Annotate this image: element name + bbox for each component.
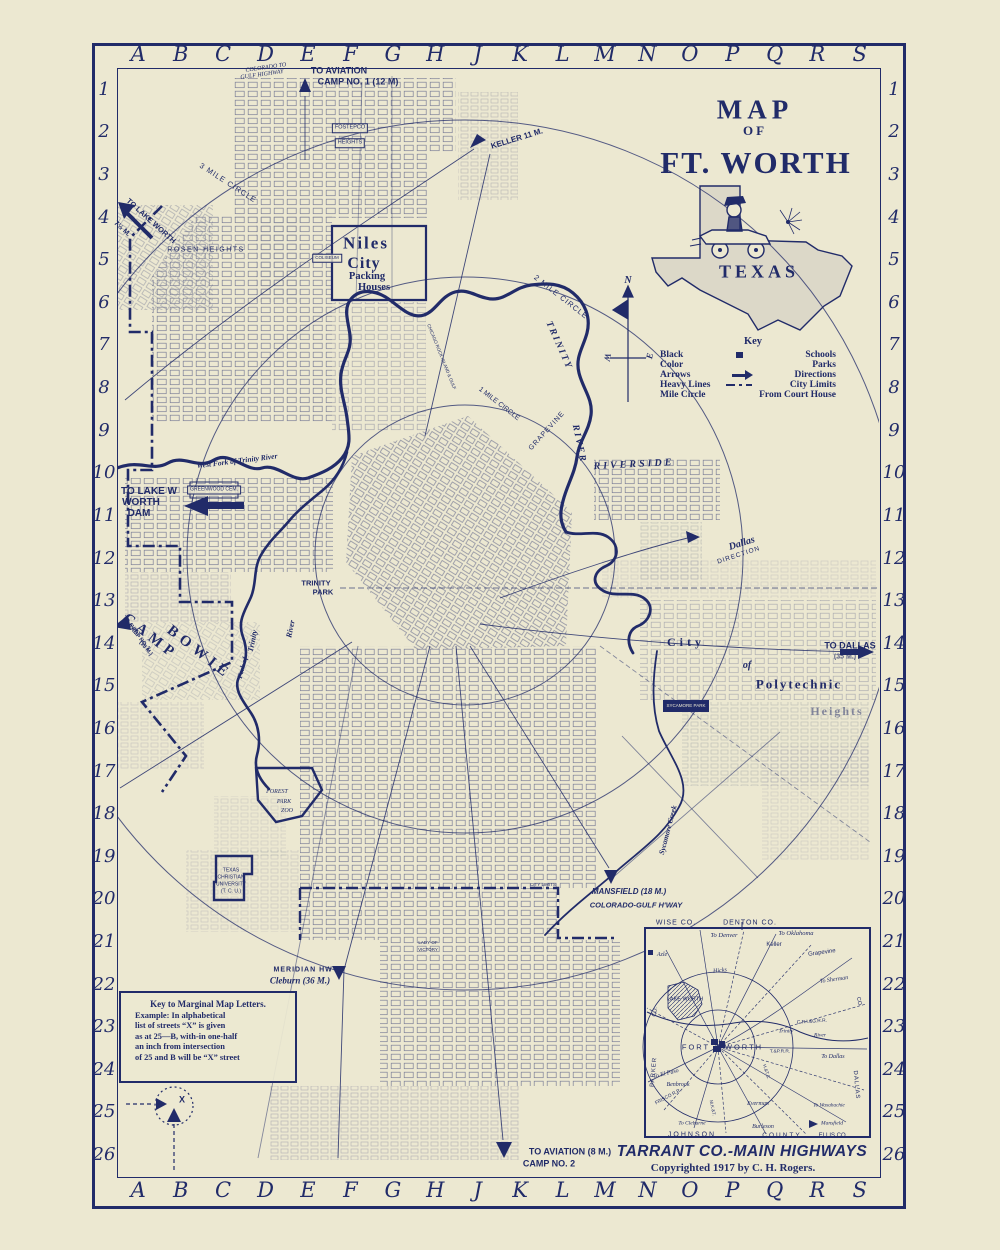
margin-number: 5 [92,238,116,281]
margin-letter: J [457,1178,499,1203]
margin-number: 12 [882,537,906,580]
margin-number: 3 [882,153,906,196]
margin-letter: C [202,42,244,67]
margin-number: 5 [882,238,906,281]
legend-label: Mile Circle [660,390,718,400]
title-line-of: OF [743,123,767,139]
margin-letter: Q [754,42,796,67]
margin-letter: S [838,42,880,67]
margin-letter: K [499,42,541,67]
margin-letter: K [499,1178,541,1203]
margin-number: 24 [92,1048,116,1091]
margin-number: 1 [882,68,906,111]
margin-number: 24 [882,1048,906,1091]
margin-letter: D [244,42,286,67]
school-square-symbol [736,352,743,358]
margin-number: 7 [92,324,116,367]
margin-letter: F [329,1178,371,1203]
marginal-key-lines: Example: In alphabeticallist of streets … [121,1011,295,1062]
margin-number: 13 [882,579,906,622]
margin-number: 11 [882,494,906,537]
margin-number: 15 [92,665,116,708]
margin-letter: H [414,42,456,67]
marginal-key-line: of 25 and B will be “X” street [135,1053,295,1062]
title-line-map: MAP [717,95,793,126]
margin-number: 3 [92,153,116,196]
margin-numbers-right: 1234567891011121314151617181920212223242… [882,68,906,1176]
margin-number: 11 [92,494,116,537]
margin-number: 26 [92,1133,116,1176]
margin-number: 26 [882,1133,906,1176]
title-line-city: FT. WORTH [660,145,851,181]
margin-letter: N [626,42,668,67]
margin-number: 23 [882,1005,906,1048]
legend-label: Color [660,360,718,370]
legend-label: Arrows [660,370,718,380]
margin-letter: R [796,1178,838,1203]
margin-number: 18 [882,792,906,835]
margin-number: 7 [882,324,906,367]
margin-letter: N [626,1178,668,1203]
margin-letter: O [669,1178,711,1203]
margin-number: 9 [92,409,116,452]
margin-letter: B [159,1178,201,1203]
margin-number: 25 [92,1091,116,1134]
margin-number: 18 [92,792,116,835]
marginal-key-line: list of streets “X” is given [135,1021,295,1030]
legend-label: Heavy Lines [660,380,718,390]
margin-letter: F [329,42,371,67]
margin-number: 2 [882,111,906,154]
margin-number: 21 [882,920,906,963]
direction-arrow-symbol [732,374,746,377]
margin-letter: O [669,42,711,67]
margin-letter: G [372,1178,414,1203]
margin-number: 17 [92,750,116,793]
legend-row-parks: Color Parks [660,360,836,370]
margin-number: 1 [92,68,116,111]
margin-letter: H [414,1178,456,1203]
legend-key-heading: Key [670,336,836,347]
margin-number: 13 [92,579,116,622]
margin-numbers-left: 1234567891011121314151617181920212223242… [92,68,116,1176]
legend-row-directions: Arrows Directions [660,370,836,380]
margin-letter: S [838,1178,880,1203]
margin-letter: B [159,42,201,67]
margin-number: 4 [92,196,116,239]
margin-letter: Q [754,1178,796,1203]
margin-number: 19 [882,835,906,878]
legend-label: From Court House [759,390,836,400]
margin-number: 20 [882,878,906,921]
margin-number: 6 [882,281,906,324]
marginal-key-line: as at 25—B, with-in one-half [135,1032,295,1041]
margin-number: 12 [92,537,116,580]
margin-letter: R [796,42,838,67]
margin-letter: M [584,42,626,67]
margin-number: 22 [92,963,116,1006]
margin-letters-top: ABCDEFGHJKLMNOPQRS [117,42,881,67]
margin-number: 15 [882,665,906,708]
legend-label: Directions [760,370,836,380]
legend-row-mile-circle: Mile Circle From Court House [660,390,836,400]
margin-letter: M [584,1178,626,1203]
margin-number: 14 [882,622,906,665]
margin-number: 10 [882,451,906,494]
margin-number: 9 [882,409,906,452]
margin-number: 8 [882,366,906,409]
margin-number: 20 [92,878,116,921]
marginal-key-line: Example: In alphabetical [135,1011,295,1020]
margin-letter: J [457,42,499,67]
map-page: ABCDEFGHJKLMNOPQRS ABCDEFGHJKLMNOPQRS 12… [0,0,1000,1250]
city-limits-line-symbol [726,384,752,387]
margin-letter: L [541,42,583,67]
margin-number: 10 [92,451,116,494]
margin-letters-bottom: ABCDEFGHJKLMNOPQRS [117,1178,881,1203]
marginal-key-line: an inch from intersection [135,1042,295,1051]
margin-number: 4 [882,196,906,239]
legend-label: Schools [760,350,836,360]
margin-number: 23 [92,1005,116,1048]
legend-label: Parks [760,360,836,370]
legend-row-schools: Black Schools [660,350,836,360]
margin-letter: E [287,42,329,67]
margin-number: 8 [92,366,116,409]
margin-number: 22 [882,963,906,1006]
margin-letter: P [711,42,753,67]
margin-letter: E [287,1178,329,1203]
margin-number: 25 [882,1091,906,1134]
copyright-notice: Copyrighted 1917 by C. H. Rogers. [651,1162,815,1174]
margin-letter: D [244,1178,286,1203]
legend-key: Key Black Schools Color Parks Arrows Dir… [660,336,836,400]
margin-letter: C [202,1178,244,1203]
margin-number: 16 [882,707,906,750]
inset-map-title: TARRANT CO.-MAIN HIGHWAYS [617,1143,867,1161]
title-state-name: TEXAS [719,262,799,283]
margin-letter: A [117,42,159,67]
margin-number: 21 [92,920,116,963]
legend-label: Black [660,350,718,360]
margin-number: 2 [92,111,116,154]
legend-row-city-limits: Heavy Lines City Limits [660,380,836,390]
marginal-key-title: Key to Marginal Map Letters. [121,999,295,1009]
legend-label: City Limits [760,380,836,390]
margin-number: 17 [882,750,906,793]
margin-number: 16 [92,707,116,750]
marginal-letters-key-box: Key to Marginal Map Letters. Example: In… [119,991,297,1083]
margin-letter: A [117,1178,159,1203]
margin-number: 14 [92,622,116,665]
margin-number: 19 [92,835,116,878]
margin-letter: L [541,1178,583,1203]
margin-number: 6 [92,281,116,324]
margin-letter: P [711,1178,753,1203]
margin-letter: G [372,42,414,67]
